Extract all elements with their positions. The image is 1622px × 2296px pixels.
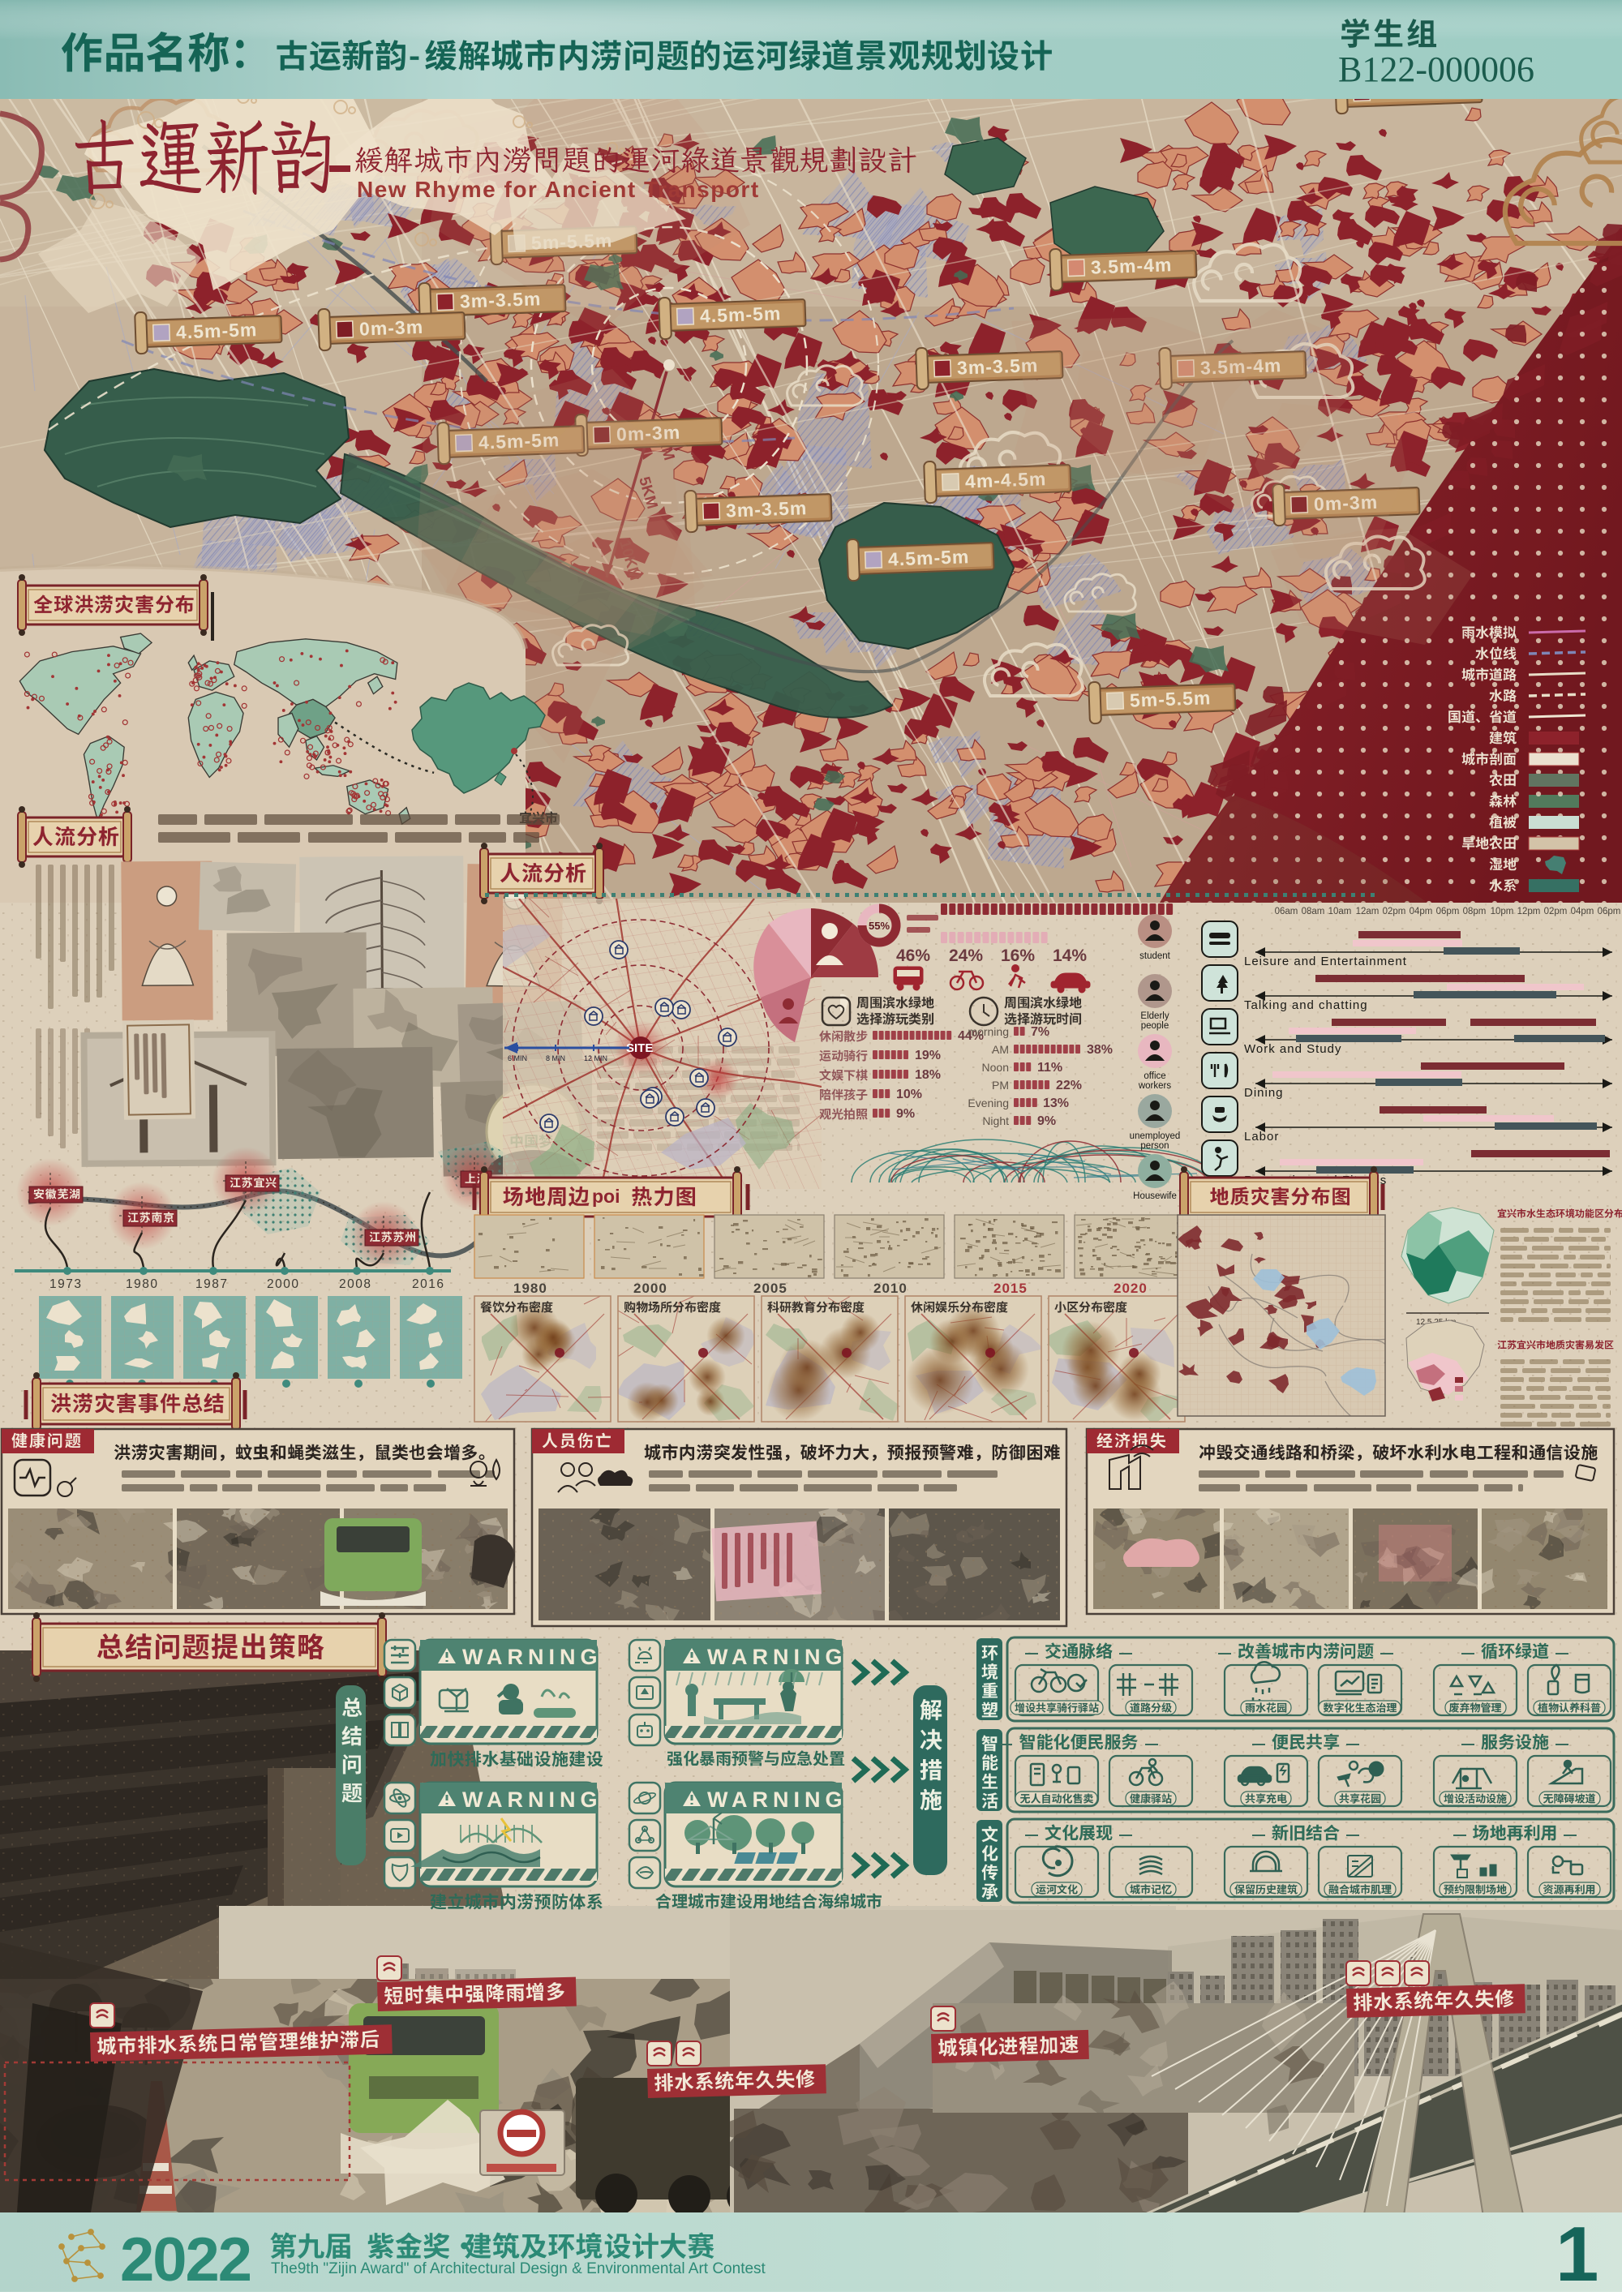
svg-text:AM: AM <box>992 1043 1009 1056</box>
svg-text:08am: 08am <box>1302 907 1325 916</box>
svg-text:11%: 11% <box>1037 1061 1062 1075</box>
svg-text:10%: 10% <box>896 1088 922 1101</box>
svg-text:Evening: Evening <box>968 1097 1009 1109</box>
svg-text:2020: 2020 <box>1114 1281 1148 1296</box>
svg-text:04pm: 04pm <box>1410 907 1433 916</box>
svg-text:06pm: 06pm <box>1436 907 1460 916</box>
svg-text:PM: PM <box>992 1079 1009 1092</box>
svg-text:8 MIN: 8 MIN <box>546 1054 565 1062</box>
svg-text:2000: 2000 <box>267 1277 299 1291</box>
svg-text:B122-000006: B122-000006 <box>1338 49 1534 89</box>
svg-text:WARNING: WARNING <box>462 1645 603 1669</box>
svg-text:1980: 1980 <box>126 1277 158 1291</box>
svg-text:46%: 46% <box>896 946 930 965</box>
svg-text:unemployed: unemployed <box>1130 1131 1181 1141</box>
svg-text:10am: 10am <box>1328 907 1352 916</box>
svg-text:18%: 18% <box>915 1068 941 1082</box>
svg-text:1: 1 <box>1555 2211 1598 2292</box>
svg-text:22%: 22% <box>1056 1079 1082 1092</box>
svg-text:workers: workers <box>1138 1081 1172 1091</box>
svg-text:2000: 2000 <box>633 1281 667 1296</box>
svg-text:1987: 1987 <box>195 1277 228 1291</box>
svg-text:poi: poi <box>592 1186 620 1207</box>
svg-text:38%: 38% <box>1087 1043 1113 1057</box>
svg-text:02pm: 02pm <box>1383 907 1406 916</box>
svg-text:16%: 16% <box>1001 946 1035 965</box>
svg-text:6 MIN: 6 MIN <box>508 1054 527 1062</box>
svg-text:14%: 14% <box>1053 946 1087 965</box>
svg-text:2022: 2022 <box>120 2225 251 2292</box>
svg-text:19%: 19% <box>915 1049 941 1062</box>
svg-text:9%: 9% <box>896 1107 915 1121</box>
svg-text:55%: 55% <box>869 920 890 932</box>
svg-text:02pm: 02pm <box>1544 907 1568 916</box>
svg-text:2005: 2005 <box>753 1281 787 1296</box>
svg-text:Labor: Labor <box>1244 1130 1279 1144</box>
svg-text:Housewife: Housewife <box>1133 1191 1177 1201</box>
svg-text:SITE: SITE <box>626 1041 653 1055</box>
svg-text:person: person <box>1140 1141 1169 1151</box>
svg-text:2015: 2015 <box>993 1281 1028 1296</box>
svg-text:10pm: 10pm <box>1491 907 1514 916</box>
svg-text:morning: morning <box>968 1025 1009 1038</box>
svg-text:06pm: 06pm <box>1598 907 1621 916</box>
svg-text:04pm: 04pm <box>1571 907 1594 916</box>
svg-text:1973: 1973 <box>49 1277 82 1291</box>
svg-text:24%: 24% <box>949 946 983 965</box>
svg-text:2010: 2010 <box>873 1281 908 1296</box>
svg-text:student: student <box>1139 951 1171 961</box>
svg-text:WARNING: WARNING <box>462 1787 603 1812</box>
svg-text:WARNING: WARNING <box>707 1645 847 1669</box>
svg-text:Work and Study: Work and Study <box>1244 1042 1341 1056</box>
svg-text:12am: 12am <box>1356 907 1380 916</box>
svg-text:12pm: 12pm <box>1517 907 1541 916</box>
svg-text:New Rhyme for Ancient Transpor: New Rhyme for Ancient Transport <box>357 177 760 202</box>
svg-text:Leisure and Entertainment: Leisure and Entertainment <box>1244 955 1407 968</box>
svg-text:9%: 9% <box>1037 1114 1056 1128</box>
svg-text:1980: 1980 <box>513 1281 547 1296</box>
svg-text:Elderly: Elderly <box>1140 1011 1169 1021</box>
svg-text:7%: 7% <box>1031 1025 1049 1039</box>
svg-text:2016: 2016 <box>412 1277 444 1291</box>
svg-text:Night: Night <box>982 1114 1009 1127</box>
svg-text:2008: 2008 <box>339 1277 371 1291</box>
svg-text:office: office <box>1144 1071 1165 1081</box>
svg-text:12 MIN: 12 MIN <box>584 1054 607 1062</box>
svg-text:Noon: Noon <box>982 1061 1009 1074</box>
svg-text:08pm: 08pm <box>1463 907 1487 916</box>
svg-text:WARNING: WARNING <box>707 1787 847 1812</box>
svg-text:people: people <box>1141 1021 1169 1031</box>
svg-text:13%: 13% <box>1043 1097 1069 1110</box>
svg-text:06am: 06am <box>1275 907 1298 916</box>
svg-text:The9th "Zijin Award" of Archit: The9th "Zijin Award" of Architectural De… <box>271 2260 766 2277</box>
svg-text:Dining: Dining <box>1244 1086 1284 1100</box>
svg-text:Talking and chatting: Talking and chatting <box>1244 998 1368 1012</box>
